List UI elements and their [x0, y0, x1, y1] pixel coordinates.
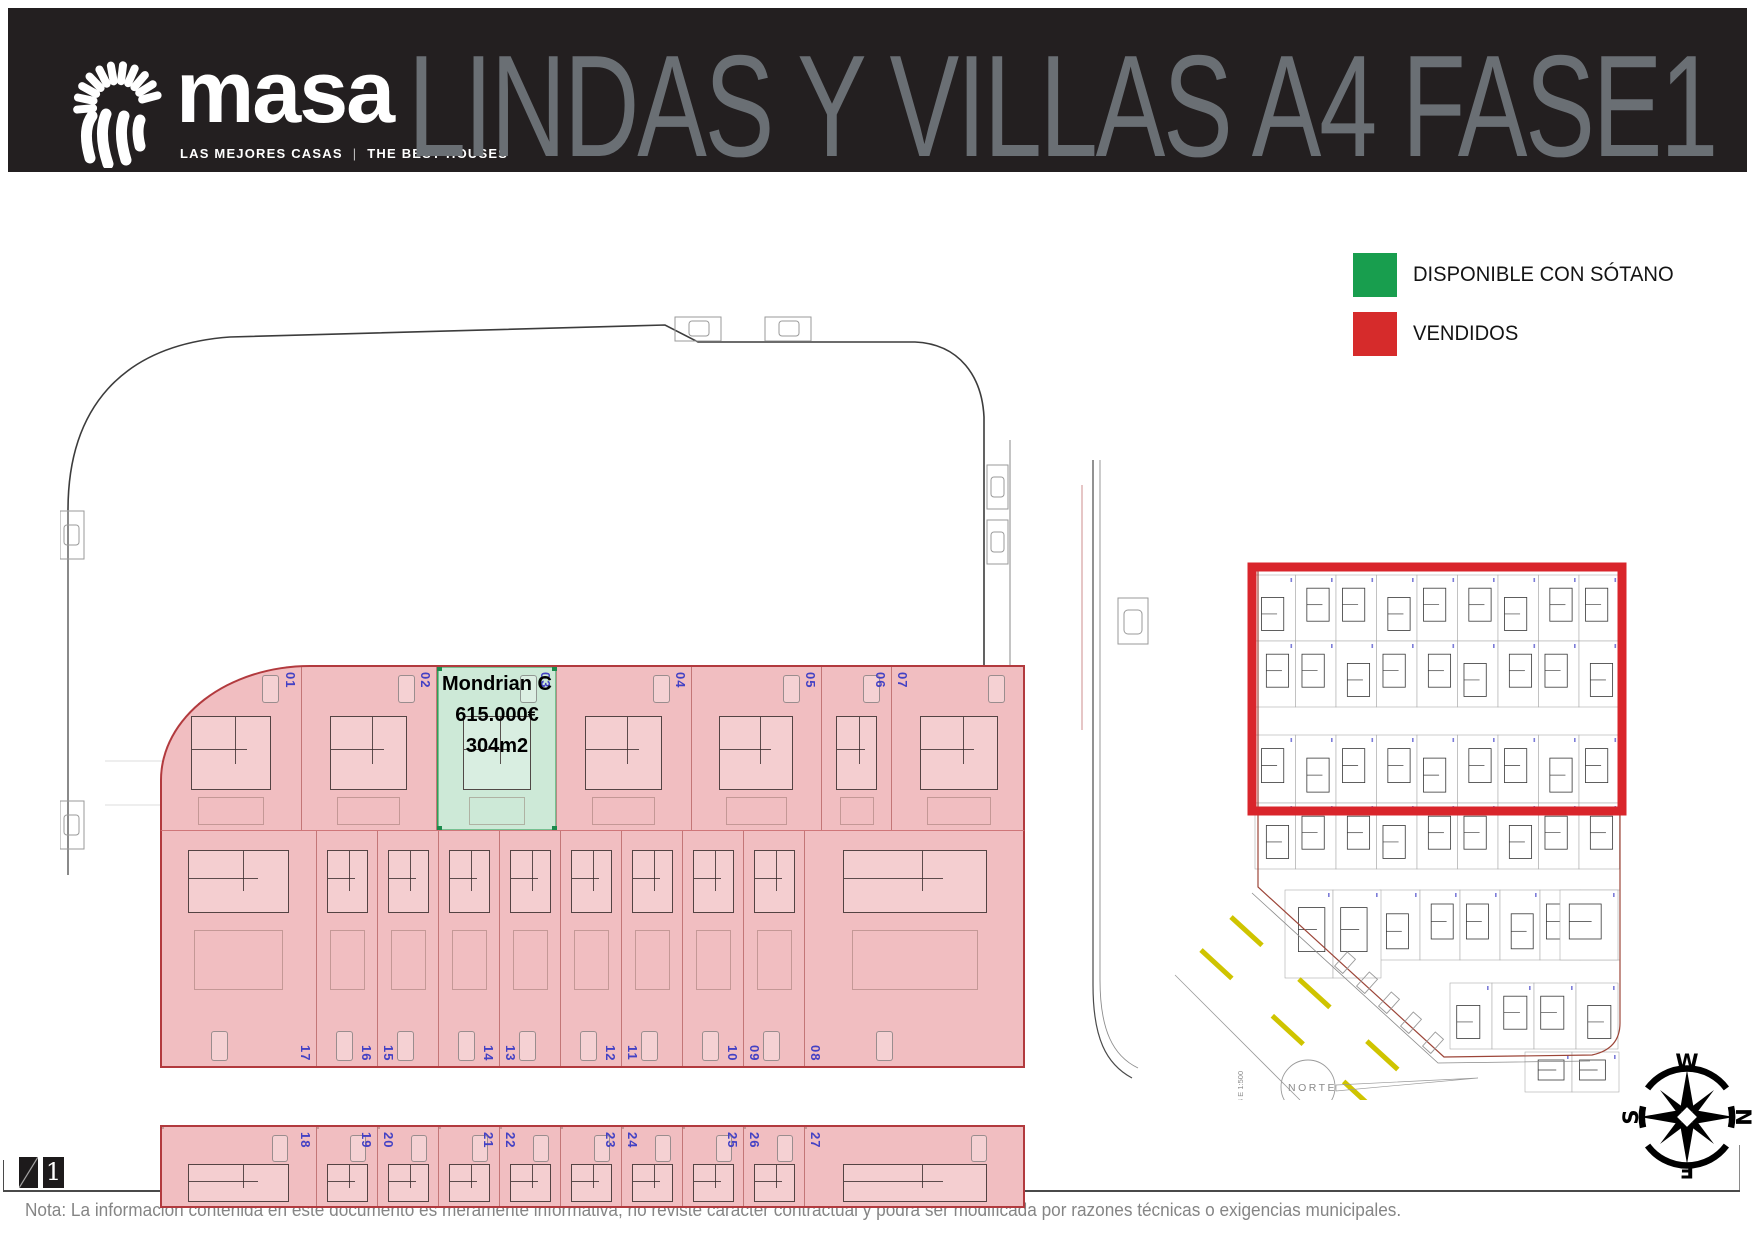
plot-26: 26: [744, 1127, 805, 1206]
car-icon: [519, 1031, 536, 1061]
svg-text:W: W: [1675, 1052, 1698, 1074]
floorplan-drawing: [188, 1164, 289, 1202]
terrace-drawing: [622, 1127, 624, 1129]
floorplan-drawing: [571, 850, 611, 913]
scale-label: A4 E 1:500: [1236, 1071, 1245, 1100]
floorplan-drawing: [388, 850, 428, 913]
floorplan-drawing: [693, 850, 733, 913]
car-icon: [777, 1135, 793, 1162]
plot-number: 07: [895, 672, 910, 688]
terrace-drawing: [513, 930, 549, 991]
car-icon: [458, 1031, 475, 1061]
car-icon: [702, 1031, 719, 1061]
terrace-drawing: [317, 1127, 319, 1129]
floorplan-drawing: [449, 1164, 489, 1202]
car-icon: [655, 1135, 671, 1162]
terrace-drawing: [391, 930, 427, 991]
plot-number: 25: [725, 1132, 740, 1148]
terrace-drawing: [927, 797, 991, 825]
terrace-drawing: [439, 1127, 441, 1129]
plot-23: 23: [561, 1127, 622, 1206]
footer-rule-tick: [3, 1160, 4, 1190]
floorplan-drawing: [693, 1164, 733, 1202]
plot-08: 08: [805, 831, 1027, 1066]
car-icon: [641, 1031, 658, 1061]
plot-number: 26: [747, 1132, 762, 1148]
tagline-left: LAS MEJORES CASAS: [180, 146, 343, 161]
plot-number: 13: [503, 1045, 518, 1061]
terrace-drawing: [805, 1127, 807, 1129]
plot-06: 06: [822, 667, 892, 830]
floorplan-drawing: [843, 850, 987, 913]
sold-swatch: [1353, 312, 1397, 356]
available-plot-label: Mondrian C615.000€304m2: [442, 669, 552, 762]
svg-text:E: E: [1680, 1158, 1694, 1182]
available-plot-price: 615.000€: [442, 700, 552, 731]
floorplan-drawing: [510, 1164, 550, 1202]
terrace-drawing: [561, 1127, 563, 1129]
car-icon: [763, 1031, 780, 1061]
terrace-drawing: [574, 930, 610, 991]
available-plot-area: 304m2: [442, 731, 552, 762]
site-plan: 010203Mondrian C615.000€304m204050607 17…: [60, 315, 1020, 900]
plot-number: 08: [808, 1045, 823, 1061]
plot-03: 03Mondrian C615.000€304m2: [437, 667, 557, 830]
plot-number: 04: [673, 672, 688, 688]
plot-14: 14: [439, 831, 500, 1066]
floorplan-drawing: [327, 1164, 367, 1202]
plot-number: 21: [481, 1132, 496, 1148]
terrace-drawing: [635, 930, 671, 991]
plot-handle: [552, 666, 557, 671]
plot-10: 10: [683, 831, 744, 1066]
car-icon: [580, 1031, 597, 1061]
plot-18: 18: [162, 1127, 317, 1206]
plot-27: 27: [805, 1127, 1025, 1206]
plot-07: 07: [892, 667, 1025, 830]
plot-19: 19: [317, 1127, 378, 1206]
floorplan-drawing: [449, 850, 489, 913]
plot-21: 21: [439, 1127, 500, 1206]
plot-number: 19: [359, 1132, 374, 1148]
floorplan-drawing: [632, 1164, 672, 1202]
plot-number: 11: [625, 1045, 640, 1061]
terrace-drawing: [592, 797, 656, 825]
plot-number: 22: [503, 1132, 518, 1148]
floorplan-drawing: [585, 716, 662, 790]
plot-number: 15: [381, 1045, 396, 1061]
plot-row-middle: 17161514131211100908: [160, 830, 1025, 1068]
floorplan-drawing: [843, 1164, 987, 1202]
tagline-separator: |: [343, 146, 368, 161]
plot-15: 15: [378, 831, 439, 1066]
compass-rose-icon: W N E S: [1622, 1052, 1752, 1182]
floorplan-drawing: [327, 850, 367, 913]
terrace-drawing: [337, 797, 401, 825]
svg-text:NORTE: NORTE: [1288, 1082, 1337, 1094]
header-bar: masa LAS MEJORES CASAS|THE BEST HOUSES L…: [8, 8, 1747, 172]
plot-13: 13: [500, 831, 561, 1066]
floorplan-drawing: [188, 850, 289, 913]
sold-label: VENDIDOS: [1413, 322, 1518, 346]
plot-number: 09: [747, 1045, 762, 1061]
car-icon: [272, 1135, 288, 1162]
floorplan-drawing: [191, 716, 271, 790]
masa-logo-icon: [66, 58, 170, 168]
plot-number: 05: [803, 672, 818, 688]
floorplan-drawing: [754, 850, 794, 913]
plot-number: 16: [359, 1045, 374, 1061]
page-number: 1: [43, 1157, 64, 1188]
car-icon: [876, 1031, 893, 1061]
floorplan-drawing: [719, 716, 793, 790]
plot-16: 16: [317, 831, 378, 1066]
car-icon: [397, 1031, 414, 1061]
plot-row-bottom: 18192021222324252627: [160, 1125, 1025, 1208]
terrace-drawing: [852, 930, 978, 991]
car-icon: [988, 675, 1005, 703]
available-label: DISPONIBLE CON SÓTANO: [1413, 263, 1674, 287]
overview-minimap: NORTE A4 E 1:500: [1140, 555, 1740, 1100]
terrace-drawing: [683, 1127, 685, 1129]
plot-number: 24: [625, 1132, 640, 1148]
floorplan-drawing: [571, 1164, 611, 1202]
terrace-drawing: [452, 930, 488, 991]
page-title: LINDAS Y VILLAS A4 FASE1: [408, 34, 1716, 179]
plot-row-top: 010203Mondrian C615.000€304m204050607: [160, 665, 1025, 830]
plot-04: 04: [557, 667, 692, 830]
car-icon: [971, 1135, 987, 1162]
plot-number: 20: [381, 1132, 396, 1148]
page: masa LAS MEJORES CASAS|THE BEST HOUSES L…: [0, 0, 1755, 1241]
plot-number: 10: [725, 1045, 740, 1061]
terrace-drawing: [162, 1127, 164, 1129]
corner-mark-icon: [19, 1157, 38, 1188]
plot-number: 06: [873, 672, 888, 688]
norte-indicator: NORTE: [1281, 1060, 1478, 1100]
floorplan-drawing: [510, 850, 550, 913]
plot-number: 02: [418, 672, 433, 688]
car-icon: [783, 675, 800, 703]
plot-number: 27: [808, 1132, 823, 1148]
plot-number: 01: [283, 672, 298, 688]
svg-text:N: N: [1731, 1108, 1752, 1126]
brand-name: masa: [176, 48, 393, 136]
plot-12: 12: [561, 831, 622, 1066]
terrace-drawing: [840, 797, 874, 825]
plot-number: 17: [298, 1045, 313, 1061]
car-icon: [411, 1135, 427, 1162]
plot-number: 14: [481, 1045, 496, 1061]
floorplan-drawing: [920, 716, 998, 790]
plot-number: 23: [603, 1132, 618, 1148]
plot-11: 11: [622, 831, 683, 1066]
plot-24: 24: [622, 1127, 683, 1206]
floorplan-drawing: [754, 1164, 794, 1202]
floorplan-drawing: [388, 1164, 428, 1202]
plot-05: 05: [692, 667, 822, 830]
terrace-drawing: [500, 1127, 502, 1129]
terrace-drawing: [378, 1127, 380, 1129]
plot-20: 20: [378, 1127, 439, 1206]
floorplan-drawing: [632, 850, 672, 913]
terrace-drawing: [757, 930, 793, 991]
car-icon: [653, 675, 670, 703]
svg-text:S: S: [1622, 1109, 1643, 1124]
floorplan-drawing: [330, 716, 407, 790]
car-icon: [262, 675, 279, 703]
car-icon: [336, 1031, 353, 1061]
terrace-drawing: [198, 797, 264, 825]
plot-number: 12: [603, 1045, 618, 1061]
car-icon: [398, 675, 415, 703]
terrace-drawing: [726, 797, 787, 825]
car-icon: [211, 1031, 228, 1061]
terrace-drawing: [696, 930, 732, 991]
plot-22: 22: [500, 1127, 561, 1206]
plot-25: 25: [683, 1127, 744, 1206]
plot-01: 01: [162, 667, 302, 830]
terrace-drawing: [744, 1127, 746, 1129]
plot-09: 09: [744, 831, 805, 1066]
floorplan-drawing: [836, 716, 877, 790]
available-plot-model: Mondrian C: [442, 669, 552, 700]
plot-02: 02: [302, 667, 437, 830]
terrace-drawing: [330, 930, 366, 991]
east-road-drawing: [1020, 430, 1150, 1090]
plot-number: 18: [298, 1132, 313, 1148]
terrace-drawing: [469, 797, 525, 825]
footer-rule-tick: [1739, 1145, 1740, 1190]
terrace-drawing: [194, 930, 282, 991]
car-icon: [533, 1135, 549, 1162]
plot-17: 17: [162, 831, 317, 1066]
available-swatch: [1353, 253, 1397, 297]
